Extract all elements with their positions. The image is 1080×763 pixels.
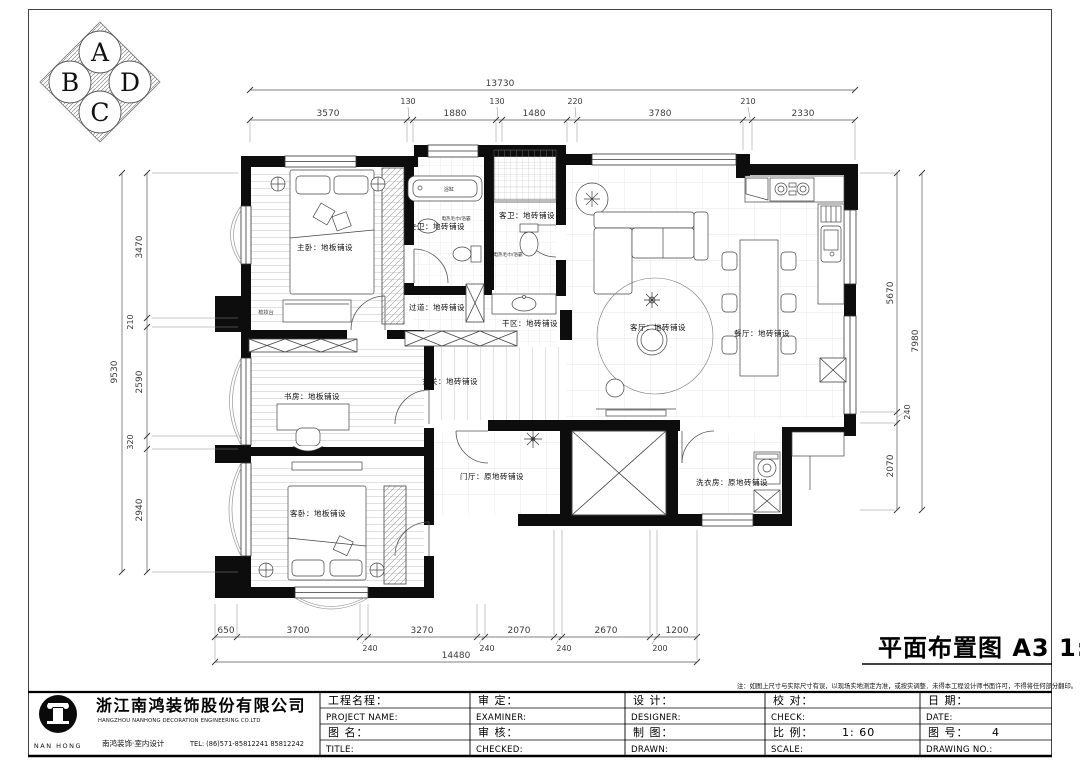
- plant-coffee-table: [644, 292, 660, 308]
- room-label-guest-bedroom: 客卧：地板铺设: [290, 508, 346, 518]
- dim-top-9: 2330: [792, 109, 815, 119]
- prep-counter: [792, 432, 844, 490]
- dimension-right: 5670 240 2070 7980: [886, 170, 925, 513]
- dim-right-1: 5670: [886, 281, 896, 304]
- dim-top-overall: 13730: [486, 79, 515, 89]
- shoe-cabinet-entry: [405, 331, 517, 346]
- company-tel: TEL: (86)571-85812241 85812242: [189, 740, 304, 748]
- dim-left-overall: 9530: [110, 360, 120, 383]
- room-label-dining: 餐厅：地砖铺设: [734, 328, 790, 338]
- drawing-sheet: A B D C: [0, 0, 1080, 763]
- field-project-cn: 工程名程：: [328, 693, 388, 707]
- elevator-shaft: [572, 431, 666, 515]
- label-towel-rack-1: 电热毛巾/浴霸: [441, 215, 471, 222]
- dim-bottom-overall: 14480: [442, 651, 471, 661]
- room-label-dry-area: 干区：地砖铺设: [502, 318, 558, 328]
- drawing-title-block: 平面布置图 A3 1:60: [862, 634, 1080, 664]
- nightstand-right: [371, 177, 385, 191]
- field-check2-en: CHECKED:: [476, 745, 523, 755]
- field-design-cn: 设 计：: [633, 694, 674, 707]
- label-dresser: 梳妆台: [258, 308, 274, 316]
- field-scale-value: 1: 60: [842, 726, 875, 739]
- field-scale-cn: 比 例：: [773, 725, 814, 739]
- dim-left-4: 320: [126, 434, 135, 449]
- window-top-bath: [428, 145, 478, 157]
- dim-right-overall: 7980: [911, 329, 921, 352]
- room-label-master-bath: 主卫：地砖铺设: [409, 221, 465, 231]
- window-bottom-guest: [295, 587, 368, 598]
- compass-letter-c: C: [90, 98, 109, 127]
- dim-bottom-2: 3700: [287, 626, 310, 636]
- window-left-guest: [241, 463, 251, 556]
- dim-left-1: 3470: [135, 235, 145, 258]
- room-label-study: 书房：地板铺设: [284, 391, 340, 401]
- kitchen-sink: [821, 226, 841, 262]
- dimension-left: 9530 3470 210 2590 320 2940: [110, 170, 150, 575]
- dining-table: [740, 240, 778, 376]
- field-title-cn: 图 名：: [328, 725, 369, 739]
- dim-bottom-9: 200: [652, 644, 667, 653]
- dim-bottom-5: 240: [479, 644, 494, 653]
- dim-top-4: 130: [489, 97, 504, 106]
- floor-plan-drawing: A B D C: [0, 0, 1080, 763]
- dim-bottom-3: 240: [362, 644, 377, 653]
- room-label-laundry: 洗衣房：原地砖铺设: [696, 477, 768, 487]
- dim-right-3: 2070: [886, 454, 896, 477]
- dim-left-2: 210: [126, 314, 135, 329]
- dim-left-5: 2940: [135, 498, 145, 521]
- stool-living: [606, 379, 624, 397]
- vanity-dry-area: [492, 294, 556, 314]
- compass-logo: A B D C: [40, 22, 160, 142]
- field-project-en: PROJECT NAME:: [326, 713, 398, 723]
- compass-letter-b: B: [61, 68, 79, 97]
- room-label-foyer: 门厅：原地砖铺设: [460, 471, 524, 481]
- dim-bottom-10: 1200: [666, 626, 689, 636]
- lamp-guest-left: [259, 563, 273, 577]
- label-towel-rack-2: 电热毛巾/浴霸: [493, 251, 523, 258]
- wardrobe-guest: [384, 486, 406, 584]
- dim-top-2: 130: [400, 97, 415, 106]
- label-bathtub: 浴缸: [444, 185, 454, 193]
- company-name-en: HANGZHOU NANHONG DECORATION ENGINEERING …: [98, 718, 261, 724]
- dimension-bottom: 650 3700 240 3270 240 2070 240 2670 200 …: [212, 626, 700, 665]
- window-right-kitchen: [844, 210, 856, 284]
- field-date-cn: 日 期：: [928, 694, 969, 707]
- stove: [770, 178, 814, 201]
- shower: [494, 150, 556, 202]
- field-design-en: DESIGNER:: [631, 713, 681, 723]
- field-check-en: CHECK:: [771, 713, 805, 723]
- dim-bottom-4: 3270: [411, 626, 434, 636]
- dim-top-7: 3780: [649, 109, 672, 119]
- nightstand-left: [271, 177, 285, 191]
- dish-rack: [821, 206, 841, 222]
- dim-top-1: 3570: [317, 109, 340, 119]
- field-title-en: TITLE:: [325, 745, 354, 755]
- field-drawn-cn: 制 图：: [633, 726, 674, 739]
- room-label-master-bedroom: 主卧：地板铺设: [297, 242, 353, 252]
- dim-bottom-7: 240: [556, 644, 571, 653]
- field-date-en: DATE:: [926, 713, 953, 723]
- dim-top-8: 210: [740, 97, 755, 106]
- room-label-entry: 玄关：地砖铺设: [422, 376, 478, 386]
- toilet-guest-bath: [520, 224, 538, 256]
- field-drawn-en: DRAWN:: [631, 745, 668, 755]
- field-no-value: 4: [992, 726, 1000, 739]
- dim-top-6: 220: [567, 97, 582, 106]
- room-label-corridor: 过道：地砖铺设: [409, 302, 465, 312]
- toilet-master-bath: [453, 246, 481, 262]
- dresser: [283, 300, 351, 322]
- tv-cabinet: [596, 409, 676, 416]
- column-corridor: [466, 284, 484, 322]
- room-label-guest-bath: 客卫：地砖铺设: [499, 210, 555, 220]
- dim-left-3: 2590: [135, 370, 145, 393]
- company-logo-text: NAN HONG: [34, 742, 82, 750]
- company-brand: 南鸿装饰·室内设计: [102, 738, 165, 748]
- dim-bottom-1: 650: [217, 626, 234, 636]
- field-no-cn: 图 号：: [928, 726, 969, 739]
- field-no-en: DRAWING NO.:: [926, 745, 993, 755]
- laundry-cabinet: [754, 490, 780, 512]
- field-examine-en: EXAMINER:: [476, 713, 526, 723]
- room-label-living: 客厅：地砖铺设: [630, 322, 686, 332]
- drawing-title: 平面布置图 A3 1:60: [878, 634, 1080, 662]
- revision-note: 注：如图上尺寸与实际尺寸有误，以现场实地测定为准，或按实调整．未得本工程设计师书…: [737, 681, 1077, 690]
- company-name-cn: 浙江南鸿装饰股份有限公司: [96, 696, 306, 715]
- field-check2-cn: 审 核：: [478, 725, 519, 739]
- column-dining: [820, 358, 846, 382]
- dim-top-3: 1880: [444, 109, 467, 119]
- dim-top-5: 1480: [523, 109, 546, 119]
- title-block: NAN HONG 浙江南鸿装饰股份有限公司 HANGZHOU NANHONG D…: [28, 692, 1052, 756]
- window-left-study: [241, 358, 251, 445]
- bed-master: [290, 170, 374, 294]
- compass-letter-d: D: [120, 68, 140, 97]
- lamp-guest-right: [370, 563, 384, 577]
- field-scale-en: SCALE:: [771, 745, 803, 755]
- window-top-master: [285, 156, 356, 167]
- dim-bottom-8: 2670: [595, 626, 618, 636]
- dimension-top: 13730 3570 130 1880 130 1480 220 3780 21…: [247, 79, 858, 123]
- bookshelf-study: [249, 339, 357, 352]
- wardrobe-master: [382, 168, 404, 324]
- company-logo: NAN HONG: [34, 695, 82, 750]
- window-top-living: [592, 154, 736, 165]
- dim-right-2: 240: [903, 404, 912, 419]
- window-left-master: [241, 206, 251, 264]
- field-examine-cn: 审 定：: [478, 693, 519, 707]
- field-check-cn: 校 对：: [773, 693, 814, 707]
- window-bottom-laundry: [702, 514, 753, 526]
- dim-bottom-6: 2070: [508, 626, 531, 636]
- compass-letter-a: A: [90, 38, 110, 67]
- plant-living: [576, 183, 608, 215]
